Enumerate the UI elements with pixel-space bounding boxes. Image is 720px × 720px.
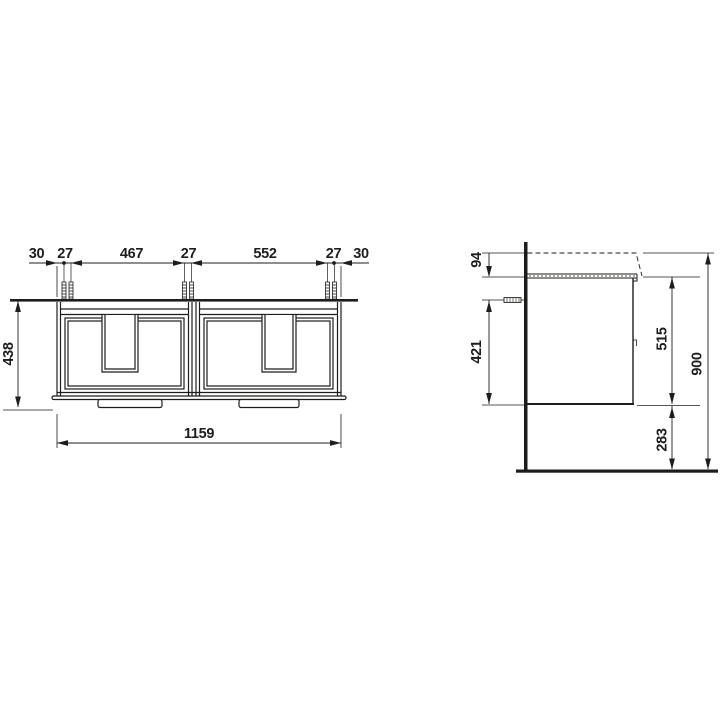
cabinet-carcass <box>57 302 341 397</box>
dim-label-30-left: 30 <box>29 246 45 262</box>
dim-label-30-right: 30 <box>353 246 369 262</box>
basin-overhang-dimension: 94 <box>469 252 524 277</box>
cabinet-side-profile <box>526 278 637 404</box>
washbasin-dashed-outline <box>528 253 643 276</box>
cabinet-height-dimension: 515 <box>637 277 700 406</box>
dim-label-283: 283 <box>655 428 671 452</box>
wall-line <box>524 242 528 472</box>
floor-clearance-dimension: 283 <box>655 406 675 470</box>
width-dimension: 1159 <box>57 414 341 448</box>
dim-label-27-middle: 27 <box>181 246 197 262</box>
floor-line <box>516 470 718 473</box>
dim-label-94: 94 <box>469 252 485 268</box>
dim-label-515: 515 <box>655 327 671 351</box>
technical-drawing: 30 27 467 27 552 27 30 438 1159 <box>0 0 720 720</box>
right-foot <box>239 400 299 408</box>
dim-label-27-left: 27 <box>57 246 73 262</box>
dim-label-421: 421 <box>469 340 485 364</box>
drawing-canvas: 30 27 467 27 552 27 30 438 1159 <box>0 0 720 720</box>
wall-fixing-screw <box>482 298 524 303</box>
plinth-and-feet <box>52 396 346 408</box>
left-foot <box>98 400 162 408</box>
top-dimension-chain: 30 27 467 27 552 27 30 <box>29 246 369 297</box>
fixing-height-dimension: 421 <box>469 300 524 405</box>
front-view: 30 27 467 27 552 27 30 438 1159 <box>1 246 369 448</box>
fixing-screws <box>62 263 337 299</box>
dim-label-900: 900 <box>690 352 706 376</box>
height-dimension: 438 <box>1 301 53 410</box>
side-view: 94 421 515 283 <box>469 242 718 473</box>
dim-label-27-right: 27 <box>326 246 342 262</box>
dim-label-467: 467 <box>120 246 144 262</box>
dim-label-438: 438 <box>1 342 17 366</box>
dim-label-1159: 1159 <box>184 426 214 442</box>
washtop-section <box>528 274 638 281</box>
dim-label-552: 552 <box>253 246 277 262</box>
